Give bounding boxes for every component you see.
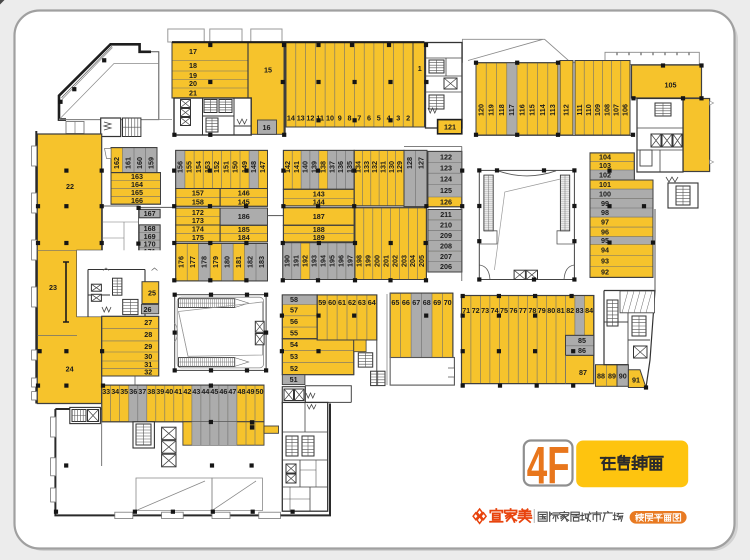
svg-text:15: 15	[264, 66, 272, 75]
svg-text:155: 155	[185, 161, 194, 173]
svg-text:176: 176	[177, 256, 186, 268]
svg-text:154: 154	[194, 161, 203, 173]
svg-text:207: 207	[440, 252, 452, 261]
svg-text:86: 86	[578, 346, 586, 355]
svg-text:206: 206	[440, 262, 452, 271]
svg-text:124: 124	[440, 174, 452, 183]
svg-text:12: 12	[306, 114, 314, 123]
svg-text:61: 61	[338, 298, 346, 307]
svg-text:48: 48	[238, 387, 246, 396]
svg-text:107: 107	[612, 104, 621, 116]
svg-text:202: 202	[390, 255, 399, 267]
svg-text:180: 180	[223, 256, 232, 268]
svg-text:7: 7	[357, 114, 361, 123]
svg-text:211: 211	[440, 210, 452, 219]
svg-text:137: 137	[327, 161, 336, 173]
svg-text:6: 6	[367, 114, 371, 123]
svg-text:77: 77	[519, 306, 527, 315]
svg-text:20: 20	[189, 79, 197, 88]
svg-text:111: 111	[575, 104, 584, 115]
svg-text:181: 181	[234, 256, 243, 268]
svg-text:35: 35	[120, 387, 128, 396]
svg-text:184: 184	[238, 233, 250, 242]
svg-text:38: 38	[147, 387, 155, 396]
svg-text:87: 87	[579, 368, 587, 377]
svg-text:90: 90	[619, 372, 627, 381]
svg-text:146: 146	[238, 188, 250, 197]
svg-text:46: 46	[219, 387, 227, 396]
svg-text:2: 2	[406, 114, 410, 123]
svg-text:198: 198	[355, 255, 364, 267]
svg-text:51: 51	[290, 375, 298, 384]
svg-text:200: 200	[372, 255, 381, 267]
svg-text:88: 88	[597, 372, 605, 381]
svg-text:141: 141	[292, 161, 301, 173]
svg-text:47: 47	[228, 387, 236, 396]
svg-text:55: 55	[290, 329, 298, 338]
svg-text:13: 13	[297, 114, 305, 123]
svg-text:100: 100	[599, 189, 611, 198]
svg-text:158: 158	[192, 197, 204, 206]
svg-text:1: 1	[418, 64, 422, 73]
svg-text:85: 85	[578, 336, 586, 345]
svg-text:17: 17	[189, 47, 197, 56]
svg-text:101: 101	[599, 180, 611, 189]
svg-text:33: 33	[102, 387, 110, 396]
svg-text:129: 129	[395, 161, 404, 173]
svg-text:21: 21	[189, 89, 197, 98]
svg-text:43: 43	[192, 387, 200, 396]
svg-text:76: 76	[510, 306, 518, 315]
svg-text:116: 116	[517, 104, 526, 116]
svg-text:123: 123	[440, 163, 452, 172]
svg-text:36: 36	[129, 387, 137, 396]
svg-text:72: 72	[472, 306, 480, 315]
svg-text:3: 3	[396, 114, 400, 123]
svg-text:192: 192	[301, 255, 310, 267]
svg-text:5: 5	[377, 114, 381, 123]
svg-text:39: 39	[156, 387, 164, 396]
svg-text:75: 75	[500, 306, 508, 315]
svg-text:8: 8	[348, 114, 352, 123]
svg-text:4F: 4F	[527, 437, 570, 496]
svg-text:40: 40	[165, 387, 173, 396]
svg-text:22: 22	[66, 182, 74, 191]
svg-text:80: 80	[547, 306, 555, 315]
svg-text:73: 73	[481, 306, 489, 315]
svg-text:83: 83	[576, 306, 584, 315]
svg-text:82: 82	[566, 306, 574, 315]
svg-text:41: 41	[174, 387, 182, 396]
svg-text:108: 108	[602, 104, 611, 116]
svg-text:23: 23	[49, 283, 57, 292]
svg-text:84: 84	[585, 306, 593, 315]
svg-text:157: 157	[192, 188, 204, 197]
svg-text:29: 29	[144, 342, 152, 351]
svg-text:126: 126	[440, 197, 452, 206]
svg-text:106: 106	[621, 104, 630, 116]
svg-text:97: 97	[601, 218, 609, 227]
svg-text:118: 118	[497, 104, 506, 116]
svg-text:27: 27	[144, 318, 152, 327]
svg-text:204: 204	[408, 255, 417, 267]
svg-text:65: 65	[391, 298, 399, 307]
svg-text:121: 121	[444, 123, 456, 132]
svg-text:63: 63	[358, 298, 366, 307]
svg-text:37: 37	[138, 387, 146, 396]
svg-text:152: 152	[212, 161, 221, 173]
svg-text:197: 197	[346, 255, 355, 267]
svg-text:81: 81	[557, 306, 565, 315]
svg-text:120: 120	[476, 104, 485, 116]
svg-text:162: 162	[112, 157, 121, 169]
svg-text:151: 151	[221, 161, 230, 173]
svg-text:14: 14	[287, 114, 295, 123]
svg-text:117: 117	[507, 104, 516, 116]
svg-text:209: 209	[440, 231, 452, 240]
svg-text:79: 79	[538, 306, 546, 315]
svg-text:94: 94	[601, 245, 609, 254]
svg-text:190: 190	[283, 255, 292, 267]
svg-text:122: 122	[440, 152, 452, 161]
svg-text:93: 93	[601, 257, 609, 266]
svg-text:159: 159	[146, 157, 155, 169]
svg-text:136: 136	[336, 161, 345, 173]
svg-text:210: 210	[440, 221, 452, 230]
svg-text:10: 10	[326, 114, 334, 123]
svg-text:60: 60	[328, 298, 336, 307]
svg-text:187: 187	[313, 212, 325, 221]
svg-text:110: 110	[584, 104, 593, 116]
svg-text:56: 56	[290, 317, 298, 326]
svg-text:9: 9	[338, 114, 342, 123]
svg-text:16: 16	[263, 123, 271, 132]
svg-text:201: 201	[381, 255, 390, 267]
svg-text:112: 112	[562, 104, 571, 116]
svg-text:58: 58	[290, 295, 298, 304]
svg-text:105: 105	[665, 81, 677, 90]
svg-text:91: 91	[632, 376, 640, 385]
svg-text:57: 57	[290, 306, 298, 315]
svg-text:67: 67	[412, 298, 420, 307]
svg-text:147: 147	[258, 161, 267, 173]
svg-text:166: 166	[131, 196, 143, 205]
svg-text:28: 28	[144, 330, 152, 339]
svg-text:160: 160	[135, 157, 144, 169]
svg-text:186: 186	[238, 212, 250, 221]
svg-text:50: 50	[256, 387, 264, 396]
svg-text:156: 156	[176, 161, 185, 173]
svg-text:42: 42	[183, 387, 191, 396]
svg-text:205: 205	[417, 255, 426, 267]
svg-text:34: 34	[111, 387, 119, 396]
svg-text:32: 32	[144, 368, 152, 377]
svg-text:18: 18	[189, 61, 197, 70]
svg-text:70: 70	[444, 298, 452, 307]
svg-text:175: 175	[192, 233, 204, 242]
svg-text:115: 115	[528, 104, 537, 116]
svg-text:119: 119	[487, 104, 496, 116]
svg-text:125: 125	[440, 186, 452, 195]
svg-text:199: 199	[364, 255, 373, 267]
svg-text:62: 62	[348, 298, 356, 307]
svg-text:161: 161	[123, 157, 132, 169]
svg-text:182: 182	[246, 256, 255, 268]
svg-text:59: 59	[318, 298, 326, 307]
svg-text:191: 191	[292, 255, 301, 267]
svg-text:68: 68	[423, 298, 431, 307]
svg-text:53: 53	[290, 352, 298, 361]
svg-text:89: 89	[608, 372, 616, 381]
svg-text:193: 193	[310, 255, 319, 267]
svg-text:64: 64	[368, 298, 376, 307]
svg-text:66: 66	[402, 298, 410, 307]
svg-text:194: 194	[319, 255, 328, 267]
svg-text:179: 179	[211, 256, 220, 268]
svg-text:189: 189	[313, 233, 325, 242]
svg-text:54: 54	[290, 340, 298, 349]
svg-text:203: 203	[399, 255, 408, 267]
svg-text:24: 24	[66, 365, 74, 374]
svg-text:25: 25	[148, 289, 156, 298]
svg-text:128: 128	[405, 157, 414, 169]
svg-text:113: 113	[548, 104, 557, 116]
svg-text:150: 150	[231, 161, 240, 173]
svg-text:92: 92	[601, 267, 609, 276]
svg-text:177: 177	[188, 256, 197, 268]
svg-text:49: 49	[247, 387, 255, 396]
svg-text:127: 127	[416, 157, 425, 169]
svg-text:44: 44	[201, 387, 209, 396]
svg-text:148: 148	[249, 161, 258, 173]
svg-text:167: 167	[144, 209, 156, 218]
svg-text:183: 183	[257, 256, 266, 268]
svg-text:208: 208	[440, 241, 452, 250]
svg-text:114: 114	[538, 104, 547, 116]
svg-text:195: 195	[328, 255, 337, 267]
svg-text:178: 178	[200, 256, 209, 268]
svg-text:109: 109	[593, 104, 602, 116]
svg-text:26: 26	[144, 305, 152, 314]
svg-text:98: 98	[601, 208, 609, 217]
svg-text:140: 140	[301, 161, 310, 173]
svg-text:196: 196	[337, 255, 346, 267]
svg-text:52: 52	[290, 364, 298, 373]
svg-text:69: 69	[433, 298, 441, 307]
svg-text:45: 45	[210, 387, 218, 396]
